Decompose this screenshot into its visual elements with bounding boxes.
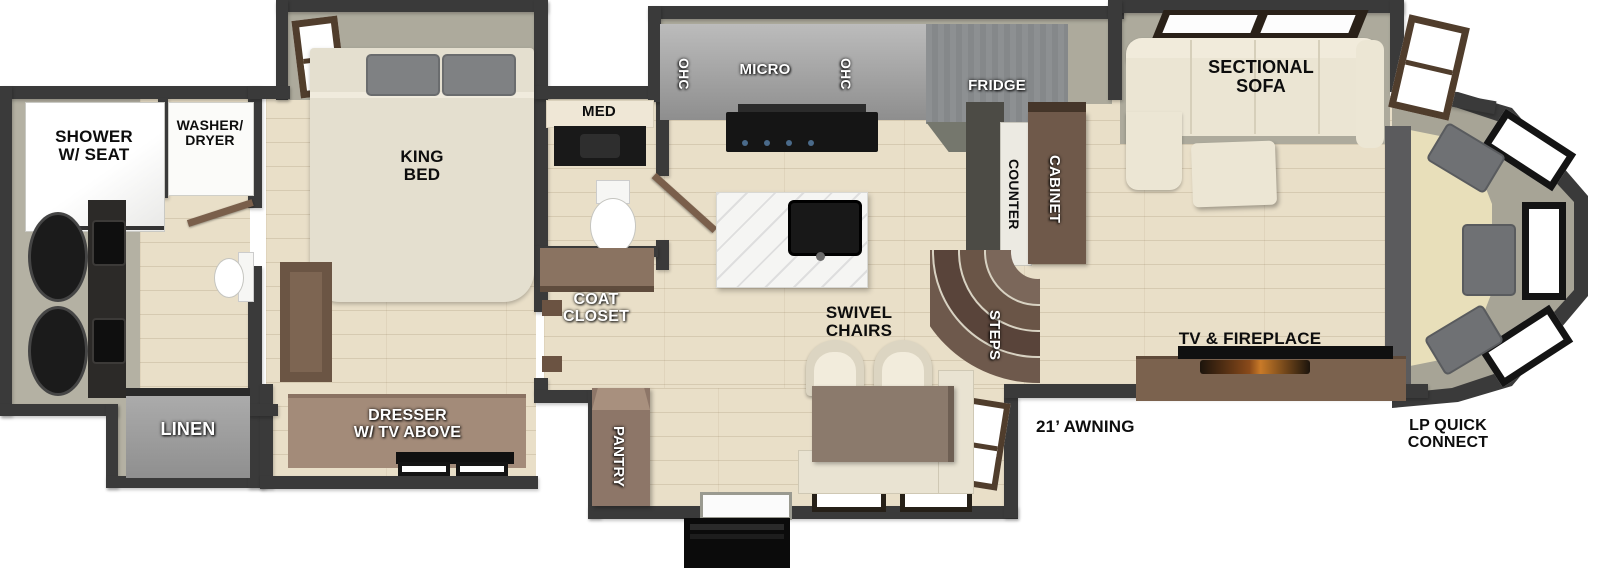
island-faucet: [816, 252, 825, 261]
wall: [0, 404, 118, 416]
wall: [0, 86, 260, 99]
label-med: MED: [546, 104, 652, 120]
booth-table: [812, 386, 954, 462]
entry-step-line: [690, 524, 784, 530]
wall: [248, 86, 290, 99]
window-bar: [1404, 60, 1453, 82]
label-linen: LINEN: [140, 420, 236, 439]
vanity-sink: [92, 318, 126, 364]
ottoman: [1191, 141, 1277, 208]
cooktop-burner: [808, 140, 814, 146]
entry-step-line: [690, 534, 784, 539]
half-bath-toilet-bowl: [590, 198, 636, 254]
sofa-skylight-pane: [1162, 15, 1257, 33]
wall: [248, 404, 278, 416]
label-king-bed: KING BED: [370, 148, 474, 184]
bedroom-desk-top: [290, 272, 322, 372]
label-swivel-chairs: SWIVEL CHAIRS: [796, 304, 922, 340]
wall: [0, 86, 12, 416]
half-bath-sink: [580, 134, 620, 158]
island-sink: [788, 200, 862, 256]
rv-floorplan: SHOWER W/ SEAT WASHER/ DRYER LINEN KING …: [0, 0, 1600, 574]
coat-closet-bracket: [542, 356, 562, 372]
label-ohc-right: OHC: [838, 44, 853, 104]
vanity-sink: [92, 220, 126, 266]
cooktop-burner: [786, 140, 792, 146]
wall: [276, 0, 548, 12]
label-sectional-sofa: SECTIONAL SOFA: [1186, 58, 1336, 96]
label-awning: 21’ AWNING: [1036, 418, 1196, 436]
wall: [648, 6, 1124, 19]
wall: [260, 476, 538, 489]
vanity-mirror: [28, 212, 88, 302]
cooktop: [726, 112, 878, 152]
bed-pillow: [442, 54, 516, 96]
entry-door-opening: [700, 492, 792, 520]
label-shower: SHOWER W/ SEAT: [30, 128, 158, 164]
label-dresser: DRESSER W/ TV ABOVE: [300, 408, 515, 442]
wall: [260, 384, 273, 488]
label-coat-closet: COAT CLOSET: [538, 292, 654, 326]
label-counter: COUNTER: [1006, 132, 1021, 256]
sofa-skylight-pane: [1260, 15, 1355, 33]
sofa-chaise: [1126, 112, 1182, 190]
rear-pillow-middle: [1462, 224, 1516, 296]
sofa-arm-right: [1356, 40, 1384, 148]
label-cabinet: CABINET: [1046, 126, 1062, 252]
counter-side: [966, 102, 1004, 264]
vanity-mirror: [28, 306, 88, 396]
label-micro: MICRO: [712, 62, 818, 78]
entry-steps: [930, 250, 1040, 390]
cooktop-burner: [742, 140, 748, 146]
toilet-bowl: [214, 258, 244, 298]
label-tv-fireplace: TV & FIREPLACE: [1140, 330, 1360, 348]
pantry-top: [592, 388, 650, 410]
wall: [1108, 0, 1122, 100]
label-steps: STEPS: [986, 288, 1002, 382]
coat-closet-shelf: [540, 248, 654, 292]
label-washer-dryer: WASHER/ DRYER: [164, 118, 256, 148]
fireplace: [1200, 360, 1310, 374]
cooktop-burner: [764, 140, 770, 146]
label-pantry: PANTRY: [610, 414, 626, 500]
label-fridge: FRIDGE: [930, 78, 1064, 94]
bed-pillow: [366, 54, 440, 96]
label-ohc-left: OHC: [676, 44, 691, 104]
label-lp-quick-connect: LP QUICK CONNECT: [1378, 418, 1518, 452]
wall: [276, 0, 288, 100]
bedroom-slide-window: [398, 462, 450, 476]
rear-window-middle: [1522, 202, 1566, 300]
bedroom-slide-window: [456, 462, 508, 476]
